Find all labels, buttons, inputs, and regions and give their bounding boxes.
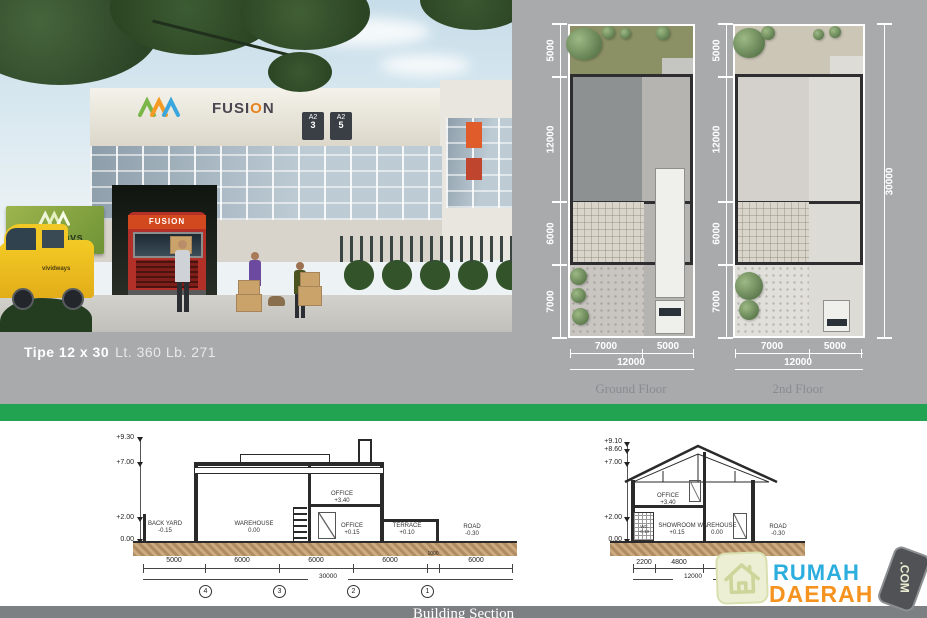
listing-title: Tipe 12 x 30Lt. 360 Lb. 271 [24,344,216,360]
room-label: WC -0.10 [632,524,656,534]
room-name: ROAD [446,524,498,531]
box-stack [298,286,322,306]
person-carrying-box [170,236,196,316]
room-name: WAREHOUSE [228,521,280,528]
room-level: 0.00 [694,530,740,537]
clerestory [240,454,330,463]
wall [194,462,198,543]
box-stack [236,294,262,312]
room-label: ROAD -0.30 [446,524,498,538]
dim-label-12000: 12000 [546,115,557,165]
room-label: OFFICE +0.15 [332,523,372,537]
truck-top-view [655,168,685,298]
dim-label: 6000 [296,557,336,564]
tree-icon [739,300,759,320]
tree-icon [813,29,824,40]
dim-label-7000: 7000 [586,341,626,352]
grid-bubble: 3 [273,585,286,598]
fusion-sign-text: FUSI [212,100,250,117]
dim-label-5000: 5000 [648,341,688,352]
dim-label-7000: 7000 [712,277,723,327]
dim-label-total: 12000 [673,573,713,580]
dim-tick [633,564,634,573]
green-divider-bar [0,404,927,421]
dim-tick [718,201,733,203]
room-level: +0.10 [381,530,433,537]
person-leg [184,282,189,312]
dim-tick [143,564,144,573]
dim-label-6000: 6000 [546,209,557,259]
tree-icon [571,288,586,303]
van-windshield [6,228,36,250]
unit-plate: A2 5 [330,112,352,140]
dim-tick [877,23,892,25]
elevation-arrow [624,517,630,522]
dim-tick [718,337,733,339]
dog [268,296,285,306]
terrace-wall [384,519,438,522]
room-level: -0.30 [446,531,498,538]
room-level: +3.40 [642,500,694,507]
tree-icon [570,268,587,285]
dim-label-12000: 12000 [712,115,723,165]
room-label: OFFICE +3.40 [642,493,694,507]
dim-line [143,568,513,569]
house-icon [717,553,767,603]
roof-fascia [194,467,384,474]
upper-walls [735,74,863,204]
brochure-page: FUSION A2 3 A2 5 FUSION [0,0,927,618]
floor-plan-ground [568,24,695,338]
room-level: -0.15 [139,528,191,535]
fusion-sign: FUSION [212,100,275,117]
dim-line [570,353,694,354]
dim-tick [427,564,428,573]
tree-icon [572,308,589,325]
grid-bubble: 2 [347,585,360,598]
plan-caption-ground: Ground Floor [586,381,676,397]
room-name: BACK YARD [139,521,191,528]
unit-plate: A2 3 [302,112,324,140]
dim-label-5000: 5000 [815,341,855,352]
dim-label-5000: 5000 [546,26,557,76]
room-label: OFFICE +3.40 [316,491,368,505]
hedge-row [340,258,512,292]
person-leg [177,282,182,312]
parapet-pylon [358,439,372,464]
dim-tick [552,76,567,78]
dim-label-7000: 7000 [752,341,792,352]
plan-caption-second: 2nd Floor [753,381,843,397]
person-head [296,262,304,270]
elev-label: +7.00 [100,459,134,466]
room-name: TERRACE [381,523,433,530]
dim-tick [552,264,567,266]
dim-tick [655,564,656,573]
fusion-sign-o: O [250,100,263,117]
elev-label: +2.00 [100,514,134,521]
truck-brand-band: FUSION [128,215,206,229]
unit-plate-number: 5 [330,121,352,130]
elev-label: +9.30 [100,434,134,441]
dim-label: 5000 [154,557,194,564]
room-level: +0.15 [332,530,372,537]
dim-line [735,353,863,354]
truck-top-view [823,300,850,332]
room-level: -0.10 [632,529,656,534]
orange-sign [466,158,482,180]
dim-tick [552,201,567,203]
floor-plan-second [733,24,865,338]
elev-label: 0.00 [100,536,134,543]
dim-tick [552,337,567,339]
truck-cab-top [655,300,685,334]
room-name: ROAD [752,524,804,531]
dim-line [570,369,694,370]
room-level: -0.30 [752,531,804,538]
dim-label-7000: 7000 [546,277,557,327]
dim-label-30000: 30000 [885,157,896,207]
ground-hatch [133,543,517,556]
dim-tick [512,564,513,573]
room-label: TERRACE +0.10 [381,523,433,537]
building-render-photo: FUSION A2 3 A2 5 FUSION [0,0,512,332]
cloud [380,55,470,75]
tree-icon [602,26,615,39]
listing-type: Tipe 12 x 30 [24,344,109,360]
tree-leaves [268,52,332,92]
elevation-arrow [137,437,143,442]
dim-label: 6000 [222,557,262,564]
person-torso [175,250,190,282]
person-head [251,252,259,260]
fusion-sign-text: N [263,100,275,117]
room-level: 0.00 [228,528,280,535]
elev-label: +2.00 [588,514,622,521]
van-wheel [12,288,34,310]
dim-label: 2200 [624,559,664,566]
dim-line [560,24,561,338]
dim-tick [718,76,733,78]
listing-areas: Lt. 360 Lb. 271 [115,344,216,360]
dim-label-12000: 12000 [611,357,651,368]
dim-tick [439,564,440,573]
room-name: WAREHOUSE [694,523,740,530]
dim-tick [877,337,892,339]
room-label: WAREHOUSE 0.00 [694,523,740,537]
office-walls [735,202,863,265]
dim-label-12000: 12000 [778,357,818,368]
room-label: BACK YARD -0.15 [139,521,191,535]
tree-canopy [420,0,512,30]
van-wheel [62,288,84,310]
dim-tick [718,264,733,266]
stair [293,507,307,541]
room-name: OFFICE [642,493,694,500]
van-brand-text: vividways [42,266,70,272]
gable-roof [605,438,810,488]
dim-tick [703,564,704,573]
dim-tick [861,349,862,358]
dim-tick [353,564,354,573]
tree-icon [656,26,670,40]
dim-label-5000: 5000 [712,26,723,76]
dim-label: 6000 [456,557,496,564]
tree-icon [566,28,602,60]
truck-windshield-top [827,319,847,326]
loading-bay: FUSION [112,185,217,303]
person-head [178,240,187,249]
truck-brand-text: FUSION [149,217,185,226]
dim-line [735,369,863,370]
van-window [42,230,64,248]
unit-plate-number: 3 [302,121,324,130]
room-label: ROAD -0.30 [752,524,804,538]
yellow-van: vividways [0,220,100,316]
logo-com-text: .COM [879,560,927,594]
dim-tick [735,349,736,358]
dim-tick [693,349,694,358]
room-name: OFFICE [332,523,372,530]
room-level: +3.40 [316,498,368,505]
truck-windshield-top [659,308,681,316]
dim-label-total: 30000 [308,573,348,580]
dim-label: 1000 [419,551,447,557]
tree-icon [761,26,775,40]
vividways-logo-icon [138,96,182,120]
tree-icon [620,28,631,39]
grid-bubble: 4 [199,585,212,598]
tree-icon [735,272,763,300]
dim-tick [279,564,280,573]
grid-bubble: 1 [421,585,434,598]
room-name: OFFICE [316,491,368,498]
ground-hatch [610,543,805,556]
elevation-arrow [137,462,143,467]
room-label: WAREHOUSE 0.00 [228,521,280,535]
fence [340,236,512,262]
orange-sign [466,122,482,148]
tree-icon [829,26,841,38]
dim-label: 6000 [370,557,410,564]
logo-daerah: DAERAH [769,581,873,608]
dim-label-6000: 6000 [712,209,723,259]
logo-house-tile [715,551,769,605]
terrace-end-wall [436,519,439,543]
dim-line [726,24,727,338]
dim-tick [570,349,571,358]
dim-tick [205,564,206,573]
dim-label: 4800 [659,559,699,566]
